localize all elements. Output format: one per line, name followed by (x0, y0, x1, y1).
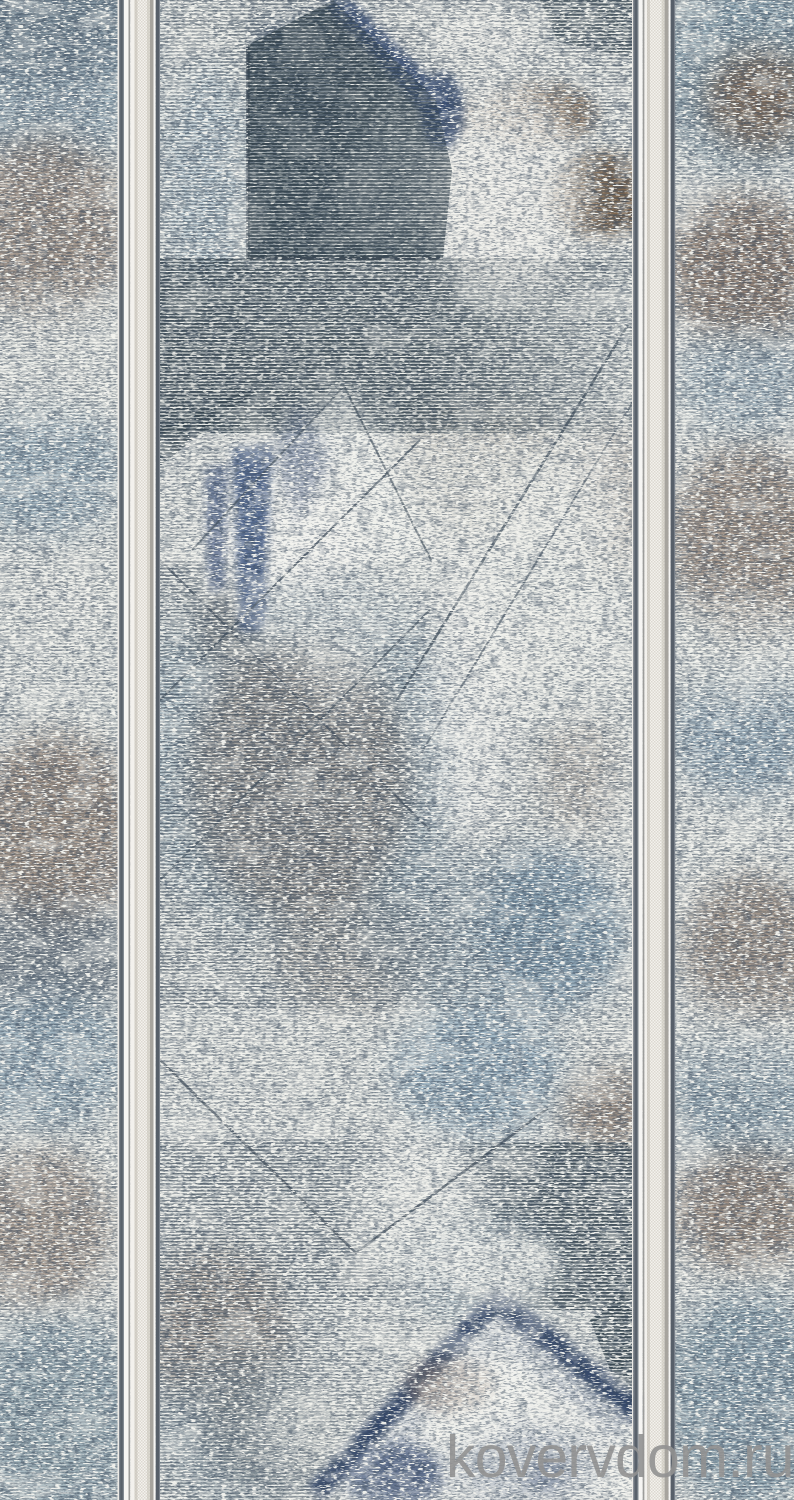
svg-text:kovervdom.ru: kovervdom.ru (446, 1424, 794, 1490)
